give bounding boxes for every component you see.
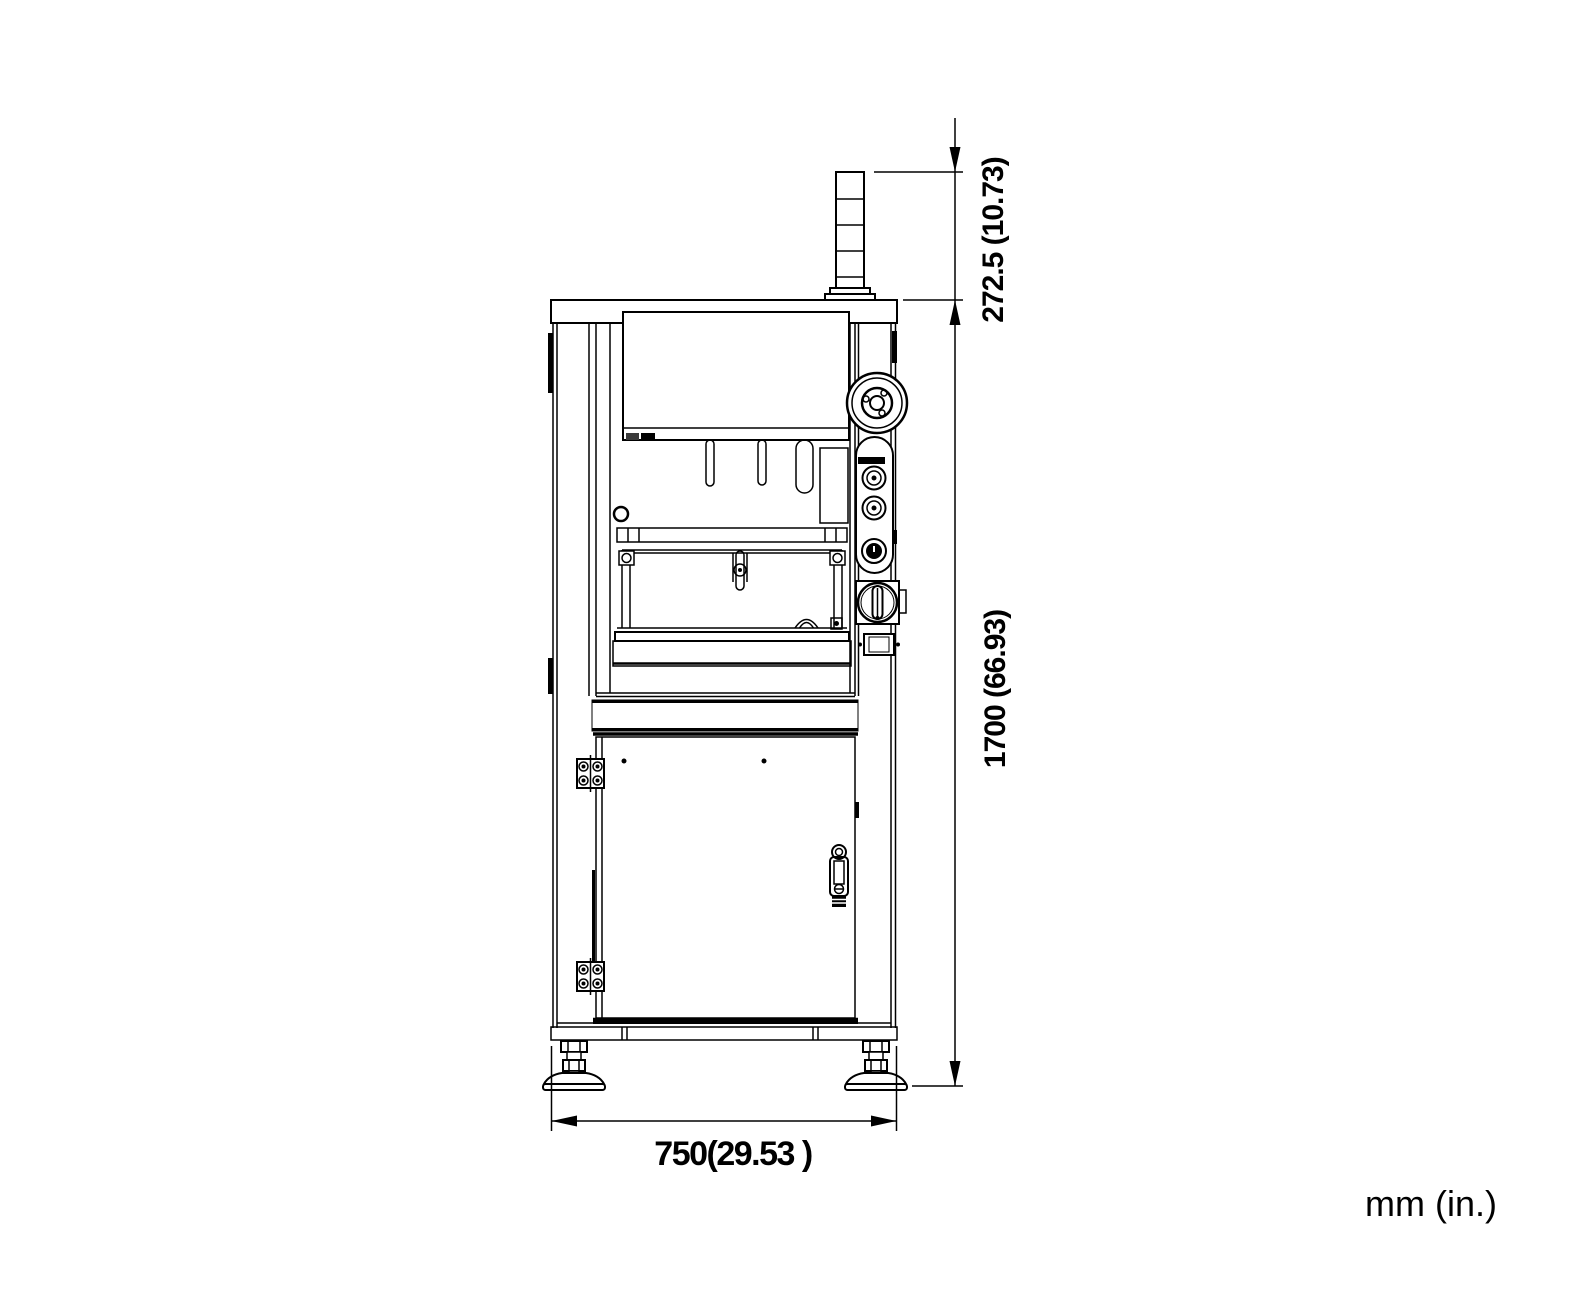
door-latch-mark — [856, 802, 860, 818]
door-dot-left — [622, 759, 627, 764]
dim-tower-height-label: 272.5 (10.73) — [977, 157, 1010, 322]
left-wall-tab-mid — [548, 658, 553, 694]
door-hinge-top — [577, 755, 604, 792]
leveling-foot-right — [845, 1041, 907, 1090]
cable-arch — [795, 620, 818, 629]
brand-logo — [626, 433, 639, 440]
switch-side-tab — [899, 590, 906, 613]
door-dot-right — [762, 759, 767, 764]
main-power-switch — [856, 581, 906, 624]
dimension-annotations: 272.5 (10.73) 1700 (66.93) 750(29.53 ) — [552, 118, 1013, 1173]
mount-hole — [614, 507, 628, 521]
machine-front-view-drawing: 272.5 (10.73) 1700 (66.93) 750(29.53 ) m… — [0, 0, 1576, 1300]
cabinet — [593, 734, 859, 1020]
arrow-down-floor — [950, 1061, 961, 1086]
leveling-foot-left — [543, 1041, 605, 1090]
arrow-down-tower — [950, 147, 961, 172]
arrow-up-plate — [950, 300, 961, 325]
right-wall-tab-top — [892, 331, 897, 363]
center-plunger — [733, 551, 747, 590]
units-note: mm (in.) — [1365, 1183, 1497, 1224]
press-head — [623, 312, 849, 440]
dim-overall-height-label: 1700 (66.93) — [979, 610, 1012, 768]
arrow-left-width — [552, 1116, 578, 1127]
left-wall-tab-top — [548, 333, 553, 393]
work-frame — [619, 550, 845, 629]
button-panel — [856, 437, 893, 573]
door-hinge-bottom — [577, 958, 604, 995]
signal-tower — [825, 172, 875, 300]
dim-overall-width-label: 750(29.53 ) — [654, 1135, 812, 1173]
mid-band — [592, 693, 858, 731]
arrow-right-width — [871, 1116, 897, 1127]
panel-label — [858, 457, 885, 464]
door-handle — [830, 845, 848, 907]
cabinet-door — [596, 737, 855, 1018]
cross-bar — [617, 528, 847, 542]
connector-port — [858, 634, 900, 655]
side-block — [820, 448, 848, 523]
platen — [613, 628, 851, 666]
estop-knob — [847, 373, 907, 433]
tooling-rods — [706, 440, 848, 523]
base — [551, 1022, 897, 1040]
drawing-page: 272.5 (10.73) 1700 (66.93) 750(29.53 ) m… — [0, 0, 1576, 1300]
